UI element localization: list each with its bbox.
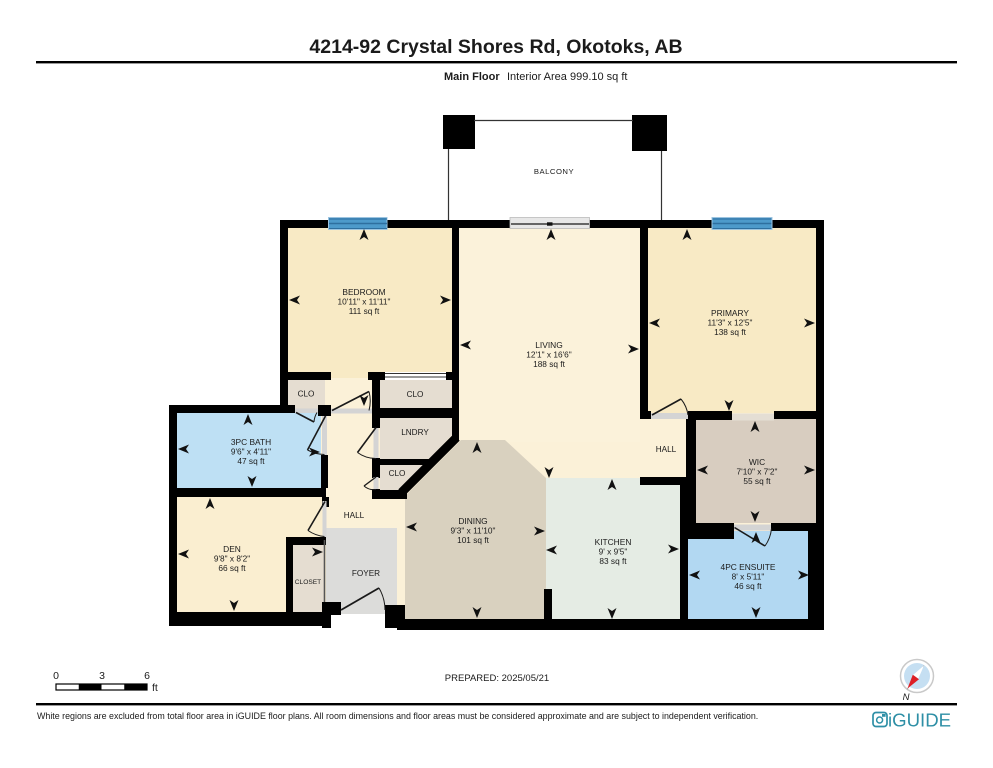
svg-text:9'3" x 11'10": 9'3" x 11'10" [451,526,496,536]
svg-text:138 sq ft: 138 sq ft [714,327,747,337]
svg-text:LNDRY: LNDRY [401,428,429,437]
svg-text:DEN: DEN [223,544,241,554]
svg-text:12'1" x 16'6": 12'1" x 16'6" [526,350,572,360]
svg-text:White regions are excluded fro: White regions are excluded from total fl… [37,711,758,721]
svg-text:3PC BATH: 3PC BATH [231,437,271,447]
svg-text:CLO: CLO [407,390,424,399]
svg-text:111 sq ft: 111 sq ft [349,306,380,316]
svg-text:10'11" x 11'11": 10'11" x 11'11" [338,297,391,307]
svg-text:7'10" x 7'2": 7'10" x 7'2" [737,467,778,477]
svg-text:FOYER: FOYER [352,569,380,578]
svg-text:CLO: CLO [389,469,406,478]
svg-text:CLO: CLO [298,390,315,399]
svg-text:Interior Area 999.10 sq ft: Interior Area 999.10 sq ft [507,71,627,83]
svg-text:101 sq ft: 101 sq ft [457,535,490,545]
svg-text:0: 0 [53,670,59,682]
svg-text:N: N [903,692,910,703]
svg-text:9'8" x 8'2": 9'8" x 8'2" [214,554,250,564]
svg-text:46 sq ft: 46 sq ft [734,581,762,591]
svg-text:Main Floor: Main Floor [444,71,500,83]
svg-text:HALL: HALL [344,511,365,520]
svg-text:47 sq ft: 47 sq ft [237,456,265,466]
svg-text:83 sq ft: 83 sq ft [599,556,627,566]
svg-text:55 sq ft: 55 sq ft [743,476,771,486]
svg-text:188 sq ft: 188 sq ft [533,359,566,369]
svg-text:PRIMARY: PRIMARY [711,308,749,318]
svg-text:HALL: HALL [656,445,677,454]
svg-text:4214-92 Crystal Shores Rd, Oko: 4214-92 Crystal Shores Rd, Okotoks, AB [309,36,682,58]
svg-text:6: 6 [144,670,150,682]
svg-text:3: 3 [99,670,105,682]
svg-text:8' x 5'11": 8' x 5'11" [732,572,765,582]
svg-text:ft: ft [152,682,158,694]
svg-text:9'6" x 4'11": 9'6" x 4'11" [231,447,271,457]
svg-text:WIC: WIC [749,457,765,467]
svg-text:9' x 9'5": 9' x 9'5" [599,547,628,557]
svg-text:4PC ENSUITE: 4PC ENSUITE [721,562,776,572]
svg-text:CLOSET: CLOSET [295,579,321,586]
svg-text:DINING: DINING [458,516,487,526]
svg-text:66 sq ft: 66 sq ft [218,563,246,573]
svg-text:BEDROOM: BEDROOM [342,287,385,297]
svg-text:iGUIDE: iGUIDE [888,710,951,731]
svg-text:BALCONY: BALCONY [534,167,574,176]
svg-text:KITCHEN: KITCHEN [595,537,632,547]
svg-text:PREPARED: 2025/05/21: PREPARED: 2025/05/21 [445,673,549,684]
svg-text:11'3" x 12'5": 11'3" x 12'5" [708,318,753,328]
svg-text:LIVING: LIVING [535,340,562,350]
